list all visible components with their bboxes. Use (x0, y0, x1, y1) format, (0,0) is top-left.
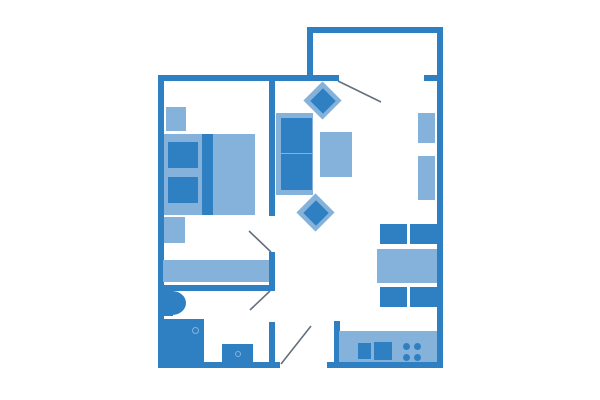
exterior-wall-top-right-segment (424, 75, 437, 81)
dining-chair-top-right (410, 224, 437, 244)
dining-chair-top-left (380, 224, 407, 244)
exterior-wall-bottom-right (327, 362, 443, 368)
sofa-cushion-bottom (281, 154, 312, 190)
sofa-cushion-top (281, 118, 312, 153)
balcony-door-swing (338, 81, 381, 102)
kitchen-sink (358, 343, 371, 359)
dresser-bench (163, 260, 269, 282)
stove-burner-3 (403, 354, 410, 361)
coffee-table (320, 132, 352, 177)
wall-bathroom-top (164, 285, 275, 291)
toilet-bowl (172, 291, 186, 315)
exterior-wall-top (158, 75, 339, 81)
nightstand-top (166, 107, 186, 131)
bed-pillow-top (168, 142, 198, 168)
dining-table (377, 249, 437, 283)
wall-shelf-bottom (418, 156, 435, 200)
exterior-wall-right (437, 27, 443, 368)
bathroom-door-swing (250, 291, 270, 310)
stove-burner-1 (403, 343, 410, 350)
kitchen-stove (374, 342, 392, 360)
nightstand-bottom (164, 217, 185, 243)
entry-door-swing (281, 326, 311, 364)
dining-chair-bottom-right (410, 287, 437, 307)
balcony-wall-left (307, 27, 313, 81)
bedroom-door-swing (249, 231, 271, 252)
wall-bedroom-living-upper (269, 81, 275, 216)
bathroom-sink-drain (235, 351, 241, 357)
stove-burner-2 (414, 343, 421, 350)
shower-drain (192, 327, 199, 334)
bed-pillow-bottom (168, 177, 198, 203)
wall-bathroom-right (269, 322, 275, 362)
shower (163, 319, 204, 363)
balcony-wall-top (307, 27, 443, 33)
bed-runner (202, 134, 213, 215)
stove-burner-4 (414, 354, 421, 361)
door-swing-lines (0, 0, 600, 400)
wall-shelf-top (418, 113, 435, 143)
floor-plan (0, 0, 600, 400)
dining-chair-bottom-left (380, 287, 407, 307)
